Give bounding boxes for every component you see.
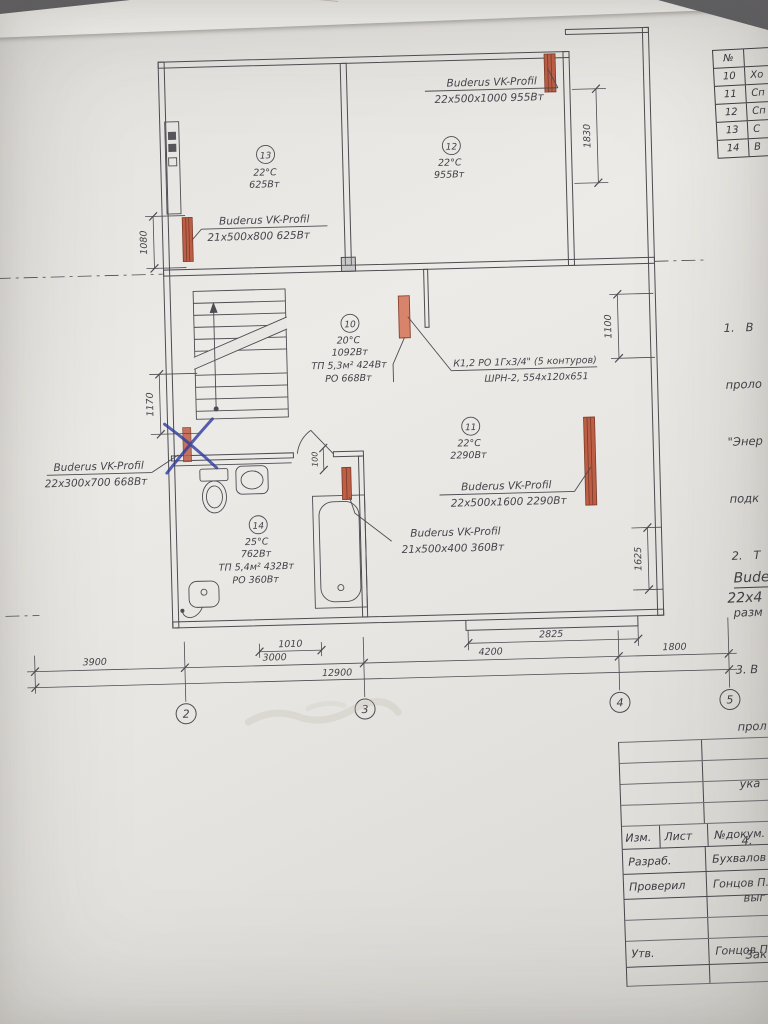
svg-text:Buderus VK-Profil: Buderus VK-Profil (410, 525, 501, 539)
svg-text:25°C: 25°C (245, 536, 269, 548)
svg-text:Buderus VK-Profil: Buderus VK-Profil (461, 479, 552, 493)
radiators (173, 53, 597, 516)
razrab-name: Бухвалов С (706, 843, 768, 871)
svg-text:21х500х400 360Вт: 21х500х400 360Вт (401, 541, 505, 556)
radiator-bath (342, 467, 352, 499)
svg-text:Buderus VK-Profil: Buderus VK-Profil (53, 460, 144, 474)
proveril-name: Гонцов П. (707, 868, 768, 896)
proveril-label: Проверил (624, 872, 708, 899)
utv-name: Гонцов П. (709, 935, 768, 964)
room-13-label: 13 22°C 625Вт (248, 145, 280, 191)
dim-1800: 1800 (662, 642, 686, 654)
note-line: подк (729, 487, 768, 508)
no-column-header: № (713, 49, 745, 68)
svg-text:11: 11 (465, 423, 477, 433)
side-buderus-label: Bude 22х4 (726, 569, 768, 606)
svg-text:22х500х1000 955Вт: 22х500х1000 955Вт (434, 91, 544, 106)
dim-4200: 4200 (478, 646, 502, 658)
manifold-cabinet (391, 296, 411, 382)
dim-1625: 1625 (633, 547, 645, 571)
dim-2825: 2825 (539, 629, 563, 641)
radiator-left (182, 217, 193, 261)
svg-text:2290Вт: 2290Вт (450, 450, 487, 462)
note-line: 1. В (723, 317, 768, 338)
equipment-labels: Buderus VK-Profil 22х500х1000 955Вт Bude… (34, 74, 601, 565)
dimension-lines (12, 81, 737, 693)
svg-text:625Вт: 625Вт (249, 179, 280, 191)
note-line: "Энер (727, 430, 768, 451)
dim-100: 100 (310, 451, 319, 467)
svg-text:ТП 5,3м² 424Вт: ТП 5,3м² 424Вт (311, 359, 387, 372)
room-10-label: 10 20°C 1092Вт ТП 5,3м² 424Вт РО 668Вт (310, 313, 388, 385)
doc-label: №докум. (708, 820, 768, 846)
dim-1100: 1100 (603, 314, 615, 338)
svg-text:1092Вт: 1092Вт (331, 347, 368, 359)
note-line: проло (725, 373, 768, 394)
room-11-label: 11 22°C 2290Вт (449, 417, 487, 462)
floor-drain-icon (180, 581, 220, 618)
svg-text:13: 13 (260, 151, 272, 161)
svg-text:955Вт: 955Вт (434, 169, 465, 181)
svg-text:РО 668Вт: РО 668Вт (325, 373, 372, 385)
bathroom-fixtures (174, 461, 368, 618)
title-block: Изм. Лист №докум. Разраб. Бухвалов С Про… (618, 735, 768, 987)
svg-text:21х500х800 625Вт: 21х500х800 625Вт (207, 229, 311, 244)
bathroom-door (297, 430, 334, 455)
svg-text:22°C: 22°C (253, 167, 277, 179)
dim-3000: 3000 (262, 652, 286, 664)
list-label: Лист (660, 824, 709, 848)
dim-1010: 1010 (278, 639, 302, 651)
label-radiator-bath: Buderus VK-Profil 21х500х400 360Вт (401, 525, 505, 556)
dim-3900: 3900 (83, 657, 107, 669)
svg-text:22°C: 22°C (438, 157, 462, 169)
svg-text:12: 12 (446, 142, 458, 152)
side-label-line2: 22х4 (727, 589, 768, 606)
dim-1170: 1170 (145, 392, 157, 416)
room-schedule-table: № 10 Хо 11 Сп 12 Сп 13 С 14 В (712, 43, 768, 159)
sink-icon (236, 465, 269, 494)
svg-text:14: 14 (252, 522, 264, 532)
svg-text:22°C: 22°C (457, 438, 481, 450)
room-labels: 13 22°C 625Вт 12 22°C 955Вт 10 20°C 1092… (208, 136, 491, 587)
ghost-writing (248, 701, 398, 722)
staircase (192, 289, 289, 419)
room-14-label: 14 25°C 762Вт ТП 5,4м² 432Вт РО 360Вт (217, 515, 295, 587)
svg-text:Buderus VK-Profil: Buderus VK-Profil (446, 75, 537, 89)
axis-4: 4 (616, 696, 623, 709)
svg-text:ТП 5,4м² 432Вт: ТП 5,4м² 432Вт (219, 561, 295, 574)
photo-of-drawing: 2 3 4 5 3900 3000 4200 1800 12900 1010 2… (0, 0, 768, 1024)
svg-text:ШРН-2, 554х120х651: ШРН-2, 554х120х651 (484, 371, 588, 385)
dim-1080: 1080 (138, 230, 150, 254)
svg-text:762Вт: 762Вт (241, 548, 272, 560)
vanity-counter (174, 463, 292, 466)
svg-text:10: 10 (344, 320, 356, 330)
note-line: 3. В (735, 658, 768, 679)
utv-label: Утв. (626, 939, 710, 967)
toilet-icon (200, 469, 229, 514)
axis-5: 5 (726, 693, 733, 706)
dim-1830: 1830 (582, 124, 594, 148)
note-line: прол (737, 715, 768, 736)
razrab-label: Разраб. (623, 847, 707, 874)
svg-text:20°C: 20°C (337, 335, 361, 347)
axis-2: 2 (182, 708, 189, 721)
svg-text:22х500х1600 2290Вт: 22х500х1600 2290Вт (451, 495, 568, 510)
room-12-label: 12 22°C 955Вт (433, 136, 465, 181)
svg-text:РО 360Вт: РО 360Вт (232, 574, 279, 586)
side-label-line1: Bude (733, 569, 768, 588)
note-line: 2. Т (731, 544, 768, 565)
svg-text:22х300х700 668Вт: 22х300х700 668Вт (45, 476, 149, 491)
izm-label: Изм. (622, 826, 661, 849)
radiator-right (584, 417, 597, 505)
svg-text:Buderus VK-Profil: Buderus VK-Profil (219, 213, 310, 227)
bathtub-icon (312, 495, 367, 608)
dim-12900: 12900 (322, 667, 353, 679)
